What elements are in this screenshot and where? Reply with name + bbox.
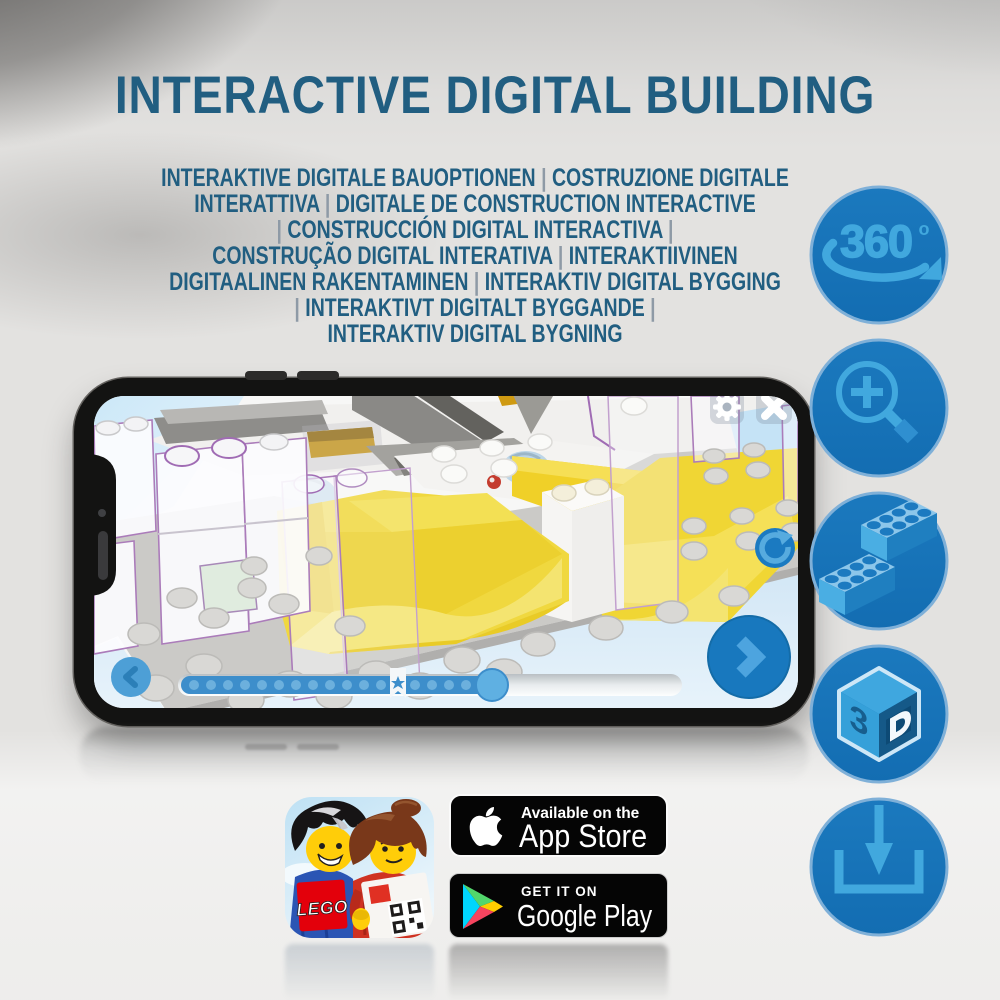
svg-text:LEGO: LEGO — [296, 896, 349, 920]
svg-text:o: o — [919, 219, 930, 239]
svg-text:360: 360 — [840, 216, 912, 267]
